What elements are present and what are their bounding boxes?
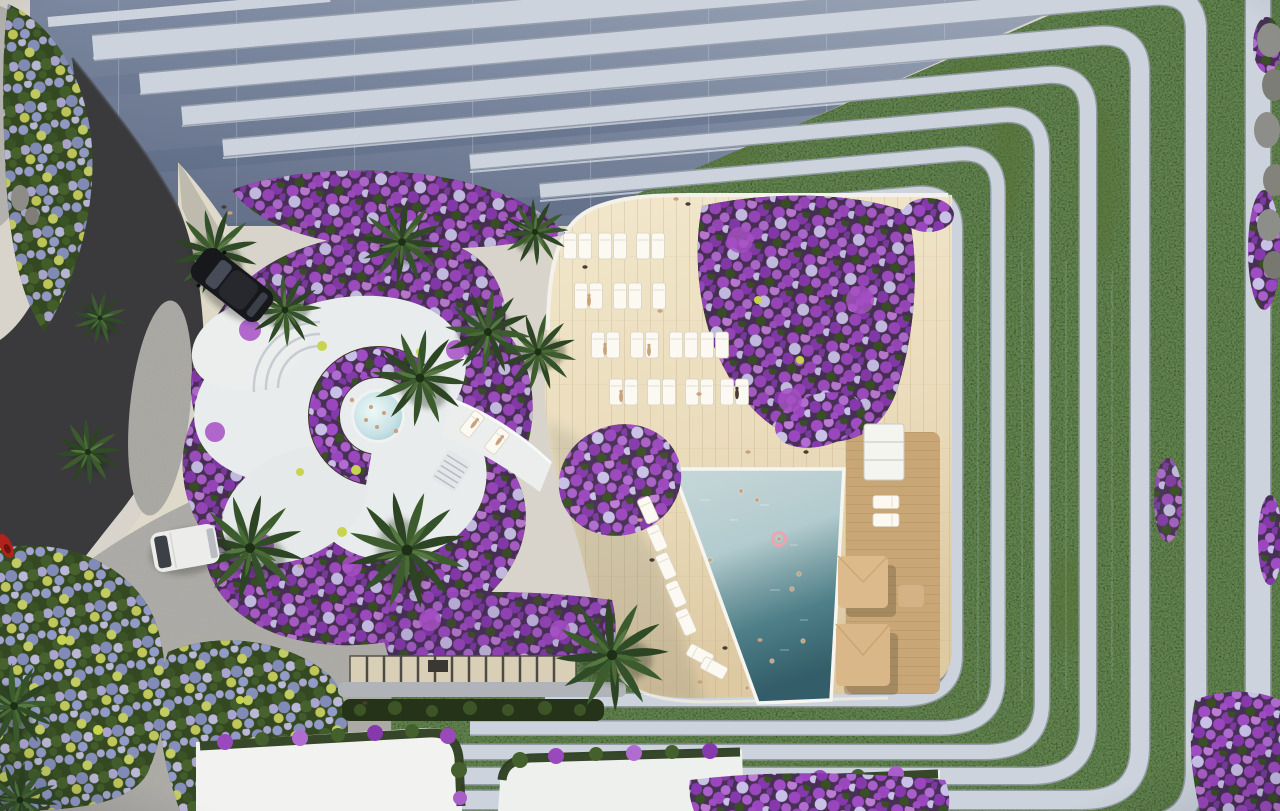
vignette [0,0,1280,811]
aerial-rendering: Aerial rendering of a luxury condominium… [0,0,1280,811]
scene-canvas: Aerial rendering of a luxury condominium… [0,0,1280,811]
